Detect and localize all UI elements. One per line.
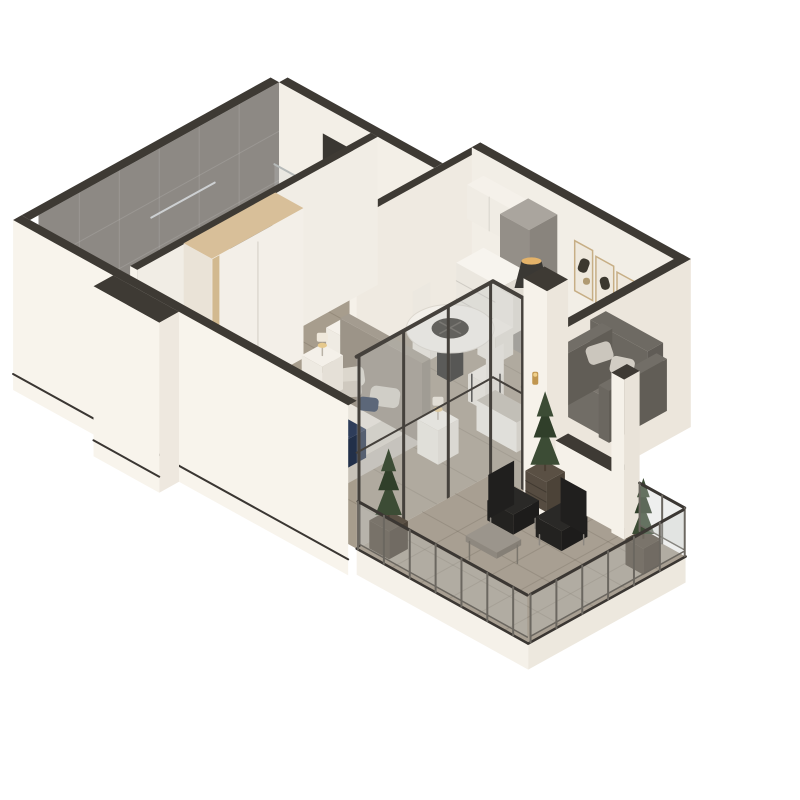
balcony-column-2 [611,364,639,540]
floorplan-stage [0,0,800,800]
wall-sconce [532,372,538,385]
wall-art-motif [583,278,590,285]
table-lamp-glow [318,343,327,348]
apartment-3d-floorplan-render [0,0,800,800]
table-lamp-shade [317,333,328,342]
front-wall-jut [94,275,180,492]
